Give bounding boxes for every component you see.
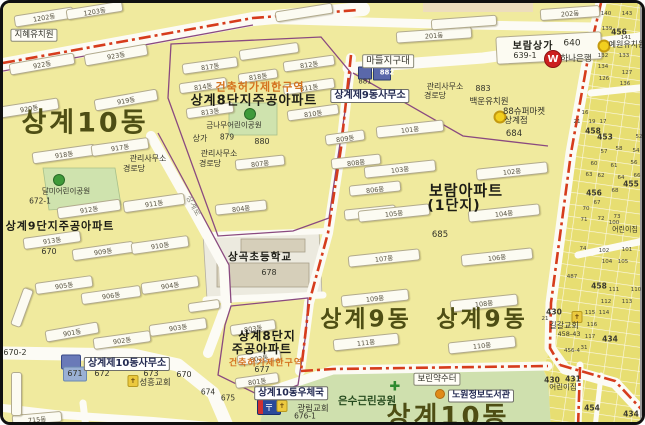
lot-number: 112 xyxy=(601,299,612,305)
lot-number: 133 xyxy=(619,53,630,59)
lot-label-684: 684 xyxy=(506,130,522,139)
building-number: 917동 xyxy=(110,141,130,153)
building-number: 812동 xyxy=(299,57,319,69)
region-label-sanggye10dong-nw: 상계10동 xyxy=(21,110,148,137)
building-number: 101동 xyxy=(400,123,419,135)
lot-number: 63 xyxy=(586,172,593,178)
lot-number: 101 xyxy=(622,247,633,253)
building-number: 105동 xyxy=(384,207,403,219)
building-number: 919동 xyxy=(116,93,136,106)
kindergarten-label-yewon: 예원유치원 xyxy=(609,41,645,49)
building-number: 807동 xyxy=(250,156,269,168)
kindergarten-label-baekun: 백운유치원 xyxy=(469,98,508,107)
kindergarten-label-jihye: 지혜유치원 xyxy=(10,29,57,42)
apartment-name-sanggye8danji-s1: 상계8단지 xyxy=(238,330,296,342)
lot-number: 114 xyxy=(599,310,610,316)
spring-icon xyxy=(435,389,445,399)
lot-number: 61 xyxy=(611,163,618,169)
building-number: 910동 xyxy=(150,239,170,251)
lot-number: 110 xyxy=(631,287,642,293)
building-number: 902동 xyxy=(112,334,132,346)
bank-label-hana: 하나은행 xyxy=(560,55,591,64)
lot-label-672-1: 672-1 xyxy=(29,197,51,205)
lot-number: 31 xyxy=(581,345,588,351)
lot-number: 102 xyxy=(599,248,610,254)
building-number: 111동 xyxy=(356,336,375,348)
apartment-name-boram2: (1단지) xyxy=(427,199,480,213)
building-number: 202동 xyxy=(560,7,579,18)
lot-number: 115 xyxy=(585,310,596,316)
region-label-sanggye9dong-e: 상계9동 xyxy=(436,309,527,332)
lot-number: 430 xyxy=(546,308,562,317)
lot-label-673: 673 xyxy=(143,370,158,378)
lot-number: 52 xyxy=(636,134,643,140)
building-number: 107동 xyxy=(374,252,393,264)
library-label: 노원정보도서관 xyxy=(448,390,514,403)
park-cross-icon: ✚ xyxy=(390,380,401,395)
police-building-number-882: 882 xyxy=(380,70,395,77)
lot-number: 62 xyxy=(598,173,605,179)
lot-number: 74 xyxy=(580,246,587,252)
lot-number: 434 xyxy=(602,335,618,344)
lot-label-458-43: 458-43 xyxy=(557,331,580,338)
building-number: 110동 xyxy=(472,339,491,351)
lot-number: 17 xyxy=(600,119,607,125)
park-label-dalmi: 달미어린이공원 xyxy=(42,187,90,195)
lot-number: 60 xyxy=(591,161,598,167)
lot-number: 66 xyxy=(634,173,641,179)
building-number: 806동 xyxy=(365,182,384,194)
senior-center-label-2: 경로당 xyxy=(199,160,221,168)
lot-label-883: 883 xyxy=(475,85,490,93)
lot-label-678: 678 xyxy=(261,269,276,277)
scan-edge xyxy=(640,3,645,425)
lot-number: 21 xyxy=(542,316,549,322)
region-label-sanggye9dong-w: 상계9동 xyxy=(320,309,411,332)
police-substation-label: 마들지구대 xyxy=(362,54,414,68)
building-number: 104동 xyxy=(494,207,513,219)
lot-number: 105 xyxy=(618,259,629,265)
building-number: 1203동 xyxy=(82,3,106,16)
lot-number: 56 xyxy=(631,160,638,166)
building-number: 809동 xyxy=(335,131,355,143)
lot-number: 117 xyxy=(585,334,596,340)
building-number: 904동 xyxy=(160,279,180,291)
restriction-zone-label-n: 건축허가제한구역 xyxy=(216,82,305,93)
building-number: 913동 xyxy=(42,234,62,246)
scan-strip xyxy=(423,3,533,12)
lot-label-672: 672 xyxy=(94,370,109,378)
building-number: 817동 xyxy=(200,59,220,71)
post-office-label: 상계10동우체국 xyxy=(254,386,328,400)
building-number: 911동 xyxy=(144,197,164,209)
senior-center-label-3: 경로당 xyxy=(424,92,446,100)
lot-number: 454 xyxy=(584,404,600,413)
church-icon: ✝ xyxy=(277,400,288,412)
management-office-label-3: 관리사무소 xyxy=(427,83,464,91)
building-number: 804동 xyxy=(231,201,250,213)
woori-bank-icon: W xyxy=(544,50,562,68)
building-number: 201동 xyxy=(424,29,443,40)
lot-number: 134 xyxy=(598,64,609,70)
lot-number: 67 xyxy=(594,200,601,206)
daycare-label-1: 어린이집 xyxy=(549,383,577,391)
supermarket-label-2: 상계점 xyxy=(504,117,527,126)
lot-number: 126 xyxy=(599,76,610,82)
lot-number: 456-4 xyxy=(564,348,580,354)
building-number: 905동 xyxy=(54,279,74,291)
lot-number: 434 xyxy=(623,410,639,419)
lot-label-639-1: 639-1 xyxy=(513,52,536,60)
school-label-sanggok: 상곡초등학교 xyxy=(228,252,292,263)
lot-number: 455 xyxy=(623,180,639,189)
lot-number: 127 xyxy=(622,70,633,76)
lot-label-675: 675 xyxy=(221,394,235,402)
building-number: 106동 xyxy=(487,251,506,263)
lot-number: 140 xyxy=(601,11,612,17)
lot-number: 19 xyxy=(589,119,596,125)
lot-number: 58 xyxy=(616,146,623,152)
lot-number: 72 xyxy=(598,216,605,222)
lot-label-685: 685 xyxy=(432,231,448,240)
building-bar xyxy=(11,372,22,416)
apartment-name-sanggye8danji-s2: 주공아파트 xyxy=(232,343,292,355)
daycare-label-2: 어린이집 xyxy=(612,227,638,234)
building-number: 102동 xyxy=(502,165,521,177)
lot-label-880: 880 xyxy=(254,138,269,146)
lot-label-879: 879 xyxy=(220,133,234,141)
senior-center-label-1: 경로당 xyxy=(123,165,145,173)
dong-office-label-sanggye9: 상계제9동사무소 xyxy=(330,89,409,103)
lot-number: 487 xyxy=(567,274,578,280)
shops-label: 상가 xyxy=(193,135,208,143)
lot-number: 21 xyxy=(574,119,581,125)
building-number: 808동 xyxy=(346,155,365,167)
building-number: 922동 xyxy=(32,57,52,70)
building-number: 1202동 xyxy=(32,10,56,23)
park-tree-icon xyxy=(244,108,256,120)
building-number: 923동 xyxy=(106,48,126,61)
lot-label-670b: 670 xyxy=(176,371,191,379)
lot-label-676-1: 676-1 xyxy=(294,412,316,420)
church-label-seongheung: 성흥교회 xyxy=(139,379,170,388)
map-canvas: 1202동1203동922동923동920동919동918동917동912동91… xyxy=(0,0,645,425)
lot-number: 104 xyxy=(602,259,613,265)
building-number: 715동 xyxy=(27,412,46,424)
building-number: 901동 xyxy=(62,325,82,338)
park-label-geumnamu: 금나무어린이공원 xyxy=(206,121,261,129)
building-number: 103동 xyxy=(390,163,409,175)
lot-number: 71 xyxy=(581,217,588,223)
apartment-name-sanggye8danji-n: 상계8단지주공아파트 xyxy=(191,95,318,108)
building-number: 906동 xyxy=(101,289,121,301)
lot-number: 143 xyxy=(622,11,633,17)
park-tree-icon xyxy=(53,174,65,186)
region-label-sanggye10dong-s: 상계10동 xyxy=(387,404,510,425)
lot-number: 54 xyxy=(633,148,640,154)
building-number: 909동 xyxy=(93,245,113,257)
lot-number: 111 xyxy=(609,287,620,293)
lot-number: 68 xyxy=(612,188,619,194)
lot-number: 70 xyxy=(583,206,590,212)
building-number: 918동 xyxy=(54,148,74,160)
management-office-label-1: 관리사무소 xyxy=(130,155,167,163)
lot-number: 458 xyxy=(591,282,607,291)
apartment-name-sanggye9danji: 상계9단지주공아파트 xyxy=(6,221,115,232)
lot-label-670-2: 670-2 xyxy=(3,349,26,357)
lot-label-640: 640 xyxy=(563,40,580,49)
church-icon: ✝ xyxy=(128,375,139,387)
lot-label-671: 671 xyxy=(67,370,82,378)
park-label-eunsu: 은수근린공원 xyxy=(338,396,396,407)
lot-number: 136 xyxy=(620,81,631,87)
building-number: 814동 xyxy=(193,79,213,91)
police-building-number-881: 881 xyxy=(358,79,371,86)
lot-number: 456 xyxy=(586,189,602,198)
apartment-name-boram1: 보람아파트 xyxy=(429,184,503,199)
building-number: 109동 xyxy=(365,292,384,304)
building-number: 801동 xyxy=(247,374,267,386)
lot-label-674: 674 xyxy=(201,388,215,396)
lot-number: 57 xyxy=(601,149,608,155)
lot-number: 113 xyxy=(622,299,633,305)
lot-label-677: 677 xyxy=(254,366,269,374)
mineral-spring-label: 보린약수터 xyxy=(413,373,460,386)
building-number: 903동 xyxy=(168,321,188,333)
lot-number: 132 xyxy=(598,53,609,59)
management-office-label-2: 관리사무소 xyxy=(201,150,238,158)
lot-number: 116 xyxy=(587,322,598,328)
building-number: 912동 xyxy=(79,203,99,215)
lot-label-670a: 670 xyxy=(41,248,56,256)
lot-number: 16 xyxy=(582,110,589,116)
lot-number: 453 xyxy=(597,133,613,142)
